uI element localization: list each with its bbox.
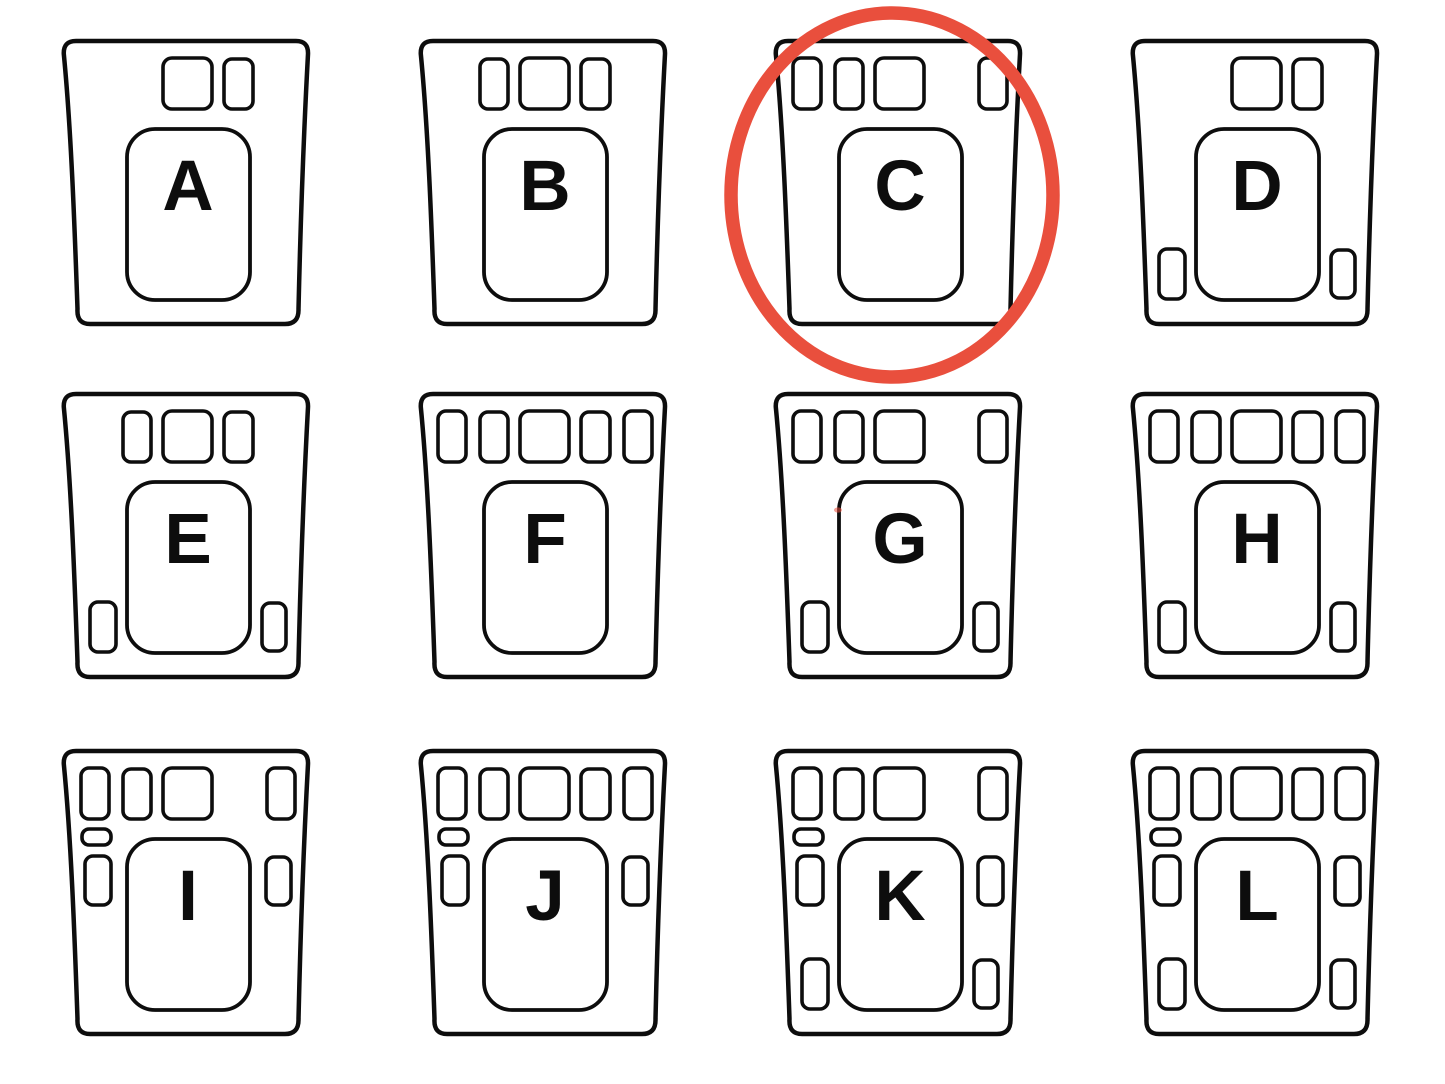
option-g[interactable]: G <box>772 391 1024 683</box>
slot-bottom-left <box>1159 959 1185 1009</box>
slot-top-square <box>875 768 924 819</box>
slot-left-pill <box>794 829 823 845</box>
slot-top-left <box>1192 769 1220 819</box>
slot-top-far-right <box>624 411 652 462</box>
slot-top-right <box>581 769 610 819</box>
slot-bottom-right <box>974 603 998 651</box>
slot-top-left <box>835 769 863 819</box>
option-label: A <box>162 147 213 226</box>
option-a[interactable]: A <box>60 38 312 330</box>
slot-top-square <box>875 411 924 462</box>
slot-right-mid <box>978 857 1003 905</box>
slot-top-square <box>520 58 569 109</box>
option-l[interactable]: L <box>1129 748 1381 1040</box>
slot-left-mid <box>1154 856 1180 905</box>
slot-top-far-left <box>1150 411 1178 462</box>
slot-top-square <box>520 768 569 819</box>
slot-top-square <box>163 58 212 109</box>
slot-left-pill <box>439 829 468 845</box>
slot-top-far-right <box>267 768 295 819</box>
option-label: H <box>1231 500 1282 579</box>
slot-top-far-right <box>979 58 1007 109</box>
option-k[interactable]: K <box>772 748 1024 1040</box>
option-label: B <box>519 147 570 226</box>
slot-bottom-left <box>90 602 116 652</box>
slot-right-mid <box>1335 857 1360 905</box>
slot-bottom-right <box>1331 250 1355 298</box>
slot-bottom-right <box>974 960 998 1008</box>
slot-top-far-left <box>438 768 466 819</box>
option-label: L <box>1235 857 1278 936</box>
slot-left-mid <box>85 856 111 905</box>
slot-top-square <box>1232 411 1281 462</box>
slot-top-left <box>123 769 151 819</box>
slot-top-right <box>1293 59 1322 109</box>
slot-bottom-right <box>1331 603 1355 651</box>
option-label: D <box>1231 147 1282 226</box>
option-label: E <box>164 500 211 579</box>
slot-bottom-left <box>1159 249 1185 299</box>
slot-right-mid <box>266 857 291 905</box>
slot-top-far-left <box>793 58 821 109</box>
slot-top-left <box>480 59 508 109</box>
slot-top-far-right <box>1336 768 1364 819</box>
option-label: I <box>178 857 198 936</box>
option-label: F <box>523 500 566 579</box>
slot-top-left <box>480 769 508 819</box>
slot-top-left <box>480 412 508 462</box>
slot-top-right <box>1293 412 1322 462</box>
slot-bottom-right <box>1331 960 1355 1008</box>
slot-top-left <box>1192 412 1220 462</box>
slot-left-pill <box>82 829 111 845</box>
slot-top-right <box>581 59 610 109</box>
slot-right-mid <box>623 857 648 905</box>
option-j[interactable]: J <box>417 748 669 1040</box>
slot-top-right <box>581 412 610 462</box>
option-label: J <box>525 857 565 936</box>
option-h[interactable]: H <box>1129 391 1381 683</box>
slot-left-pill <box>1151 829 1180 845</box>
slot-top-square <box>520 411 569 462</box>
slot-bottom-right <box>262 603 286 651</box>
option-i[interactable]: I <box>60 748 312 1040</box>
slot-top-far-left <box>438 411 466 462</box>
slot-top-left <box>835 59 863 109</box>
slot-top-left <box>835 412 863 462</box>
puzzle-board: ABCDEFGHIJKL <box>0 0 1445 1084</box>
option-label: K <box>874 857 925 936</box>
slot-top-far-left <box>1150 768 1178 819</box>
slot-top-square <box>1232 58 1281 109</box>
option-f[interactable]: F <box>417 391 669 683</box>
slot-left-mid <box>797 856 823 905</box>
slot-bottom-left <box>802 602 828 652</box>
slot-top-right <box>224 59 253 109</box>
slot-top-far-left <box>81 768 109 819</box>
slot-top-square <box>163 411 212 462</box>
option-c[interactable]: C <box>772 38 1024 330</box>
option-label: G <box>872 500 927 579</box>
slot-top-far-right <box>979 768 1007 819</box>
slot-top-square <box>875 58 924 109</box>
option-label: C <box>874 147 925 226</box>
slot-top-left <box>123 412 151 462</box>
slot-top-far-left <box>793 768 821 819</box>
option-b[interactable]: B <box>417 38 669 330</box>
slot-left-mid <box>442 856 468 905</box>
slot-top-square <box>163 768 212 819</box>
slot-top-right <box>1293 769 1322 819</box>
slot-bottom-left <box>1159 602 1185 652</box>
slot-bottom-left <box>802 959 828 1009</box>
slot-top-square <box>1232 768 1281 819</box>
option-e[interactable]: E <box>60 391 312 683</box>
slot-top-right <box>224 412 253 462</box>
slot-top-far-right <box>624 768 652 819</box>
slot-top-far-right <box>979 411 1007 462</box>
slot-top-far-right <box>1336 411 1364 462</box>
option-d[interactable]: D <box>1129 38 1381 330</box>
slot-top-far-left <box>793 411 821 462</box>
